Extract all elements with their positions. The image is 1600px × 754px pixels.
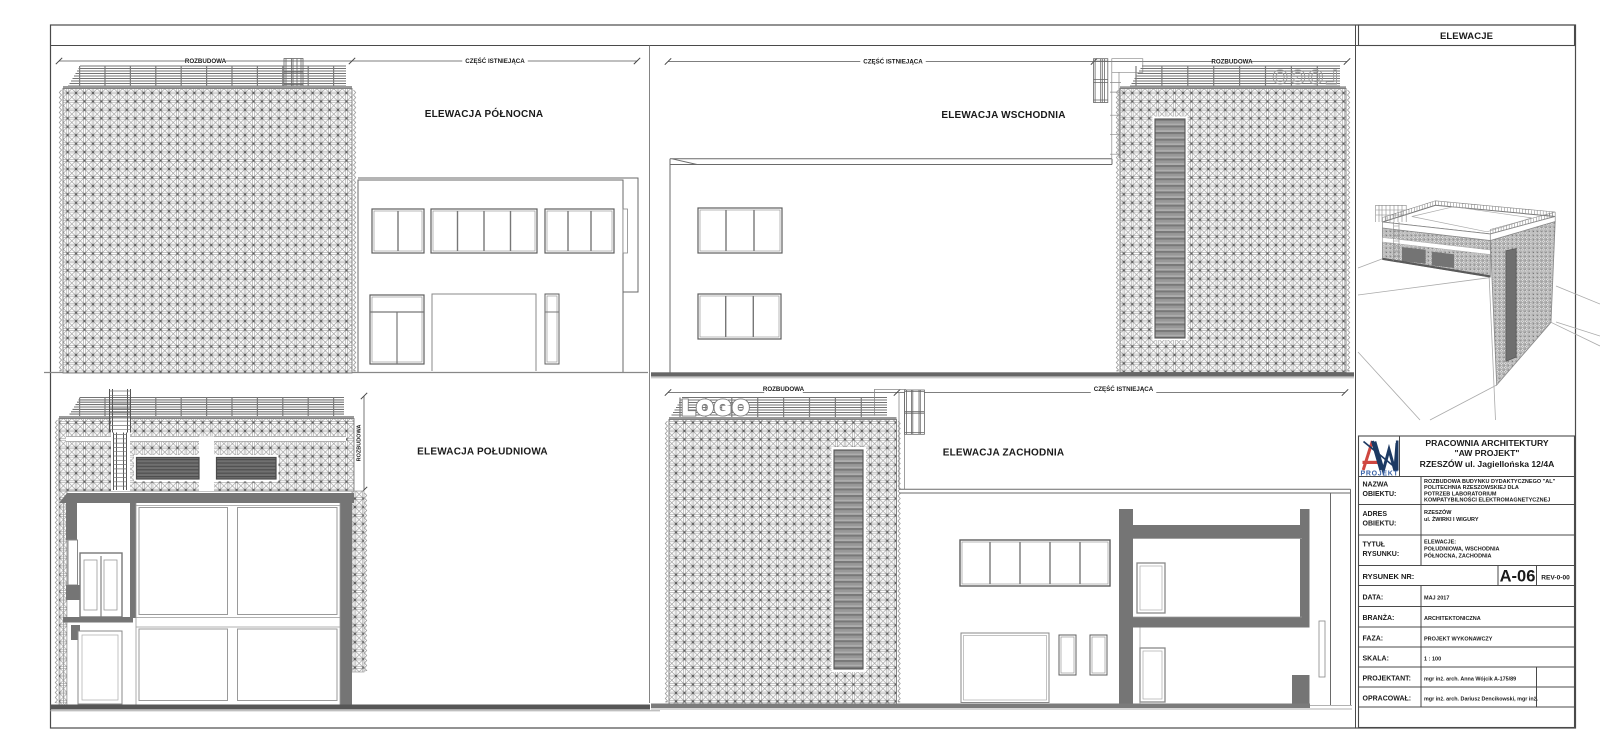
- svg-text:ELEWACJA PÓŁNOCNA: ELEWACJA PÓŁNOCNA: [425, 107, 544, 120]
- svg-text:ELEWACJA ZACHODNIA: ELEWACJA ZACHODNIA: [943, 448, 1065, 459]
- svg-text:RYSUNKU:: RYSUNKU:: [1363, 551, 1400, 558]
- svg-text:POTRZEB LABORATORIUM: POTRZEB LABORATORIUM: [1424, 491, 1497, 497]
- svg-text:PÓŁNOCNA, ZACHODNIA: PÓŁNOCNA, ZACHODNIA: [1424, 552, 1492, 560]
- svg-text:OBIEKTU:: OBIEKTU:: [1363, 521, 1397, 528]
- svg-text:OPRACOWAŁ:: OPRACOWAŁ:: [1363, 696, 1412, 703]
- svg-text:DATA:: DATA:: [1363, 595, 1384, 602]
- svg-text:"AW PROJEKT": "AW PROJEKT": [1455, 448, 1520, 458]
- svg-text:ELEWACJE: ELEWACJE: [1440, 31, 1493, 42]
- svg-text:PROJEKTANT:: PROJEKTANT:: [1363, 676, 1411, 683]
- svg-text:ROZBUDOWA: ROZBUDOWA: [763, 386, 805, 393]
- svg-text:POLITECHNIA RZESZOWSKIEJ DLA: POLITECHNIA RZESZOWSKIEJ DLA: [1424, 485, 1519, 491]
- svg-text:PRACOWNIA ARCHITEKTURY: PRACOWNIA ARCHITEKTURY: [1425, 438, 1548, 448]
- svg-text:TYTUŁ: TYTUŁ: [1363, 542, 1386, 549]
- svg-text:NAZWA: NAZWA: [1363, 482, 1389, 489]
- svg-text:SKALA:: SKALA:: [1363, 656, 1389, 663]
- svg-text:ADRES: ADRES: [1363, 511, 1388, 518]
- svg-text:PROJEKT: PROJEKT: [1361, 470, 1399, 477]
- svg-text:RZESZÓW: RZESZÓW: [1424, 508, 1452, 516]
- svg-text:CZĘŚĆ ISTNIEJĄCA: CZĘŚĆ ISTNIEJĄCA: [465, 57, 525, 65]
- svg-text:mgr inż. arch. Dariusz Denciko: mgr inż. arch. Dariusz Dencikowski, mgr …: [1424, 697, 1538, 703]
- svg-text:OBIEKTU:: OBIEKTU:: [1363, 491, 1397, 498]
- svg-text:MAJ 2017: MAJ 2017: [1424, 596, 1449, 602]
- svg-text:PROJEKT WYKONAWCZY: PROJEKT WYKONAWCZY: [1424, 637, 1493, 643]
- svg-text:KOMPATYBILNOŚCI ELEKTROMAGNETY: KOMPATYBILNOŚCI ELEKTROMAGNETYCZNEJ: [1424, 497, 1550, 504]
- svg-text:1 : 100: 1 : 100: [1424, 657, 1441, 663]
- svg-text:ROZBUDOWA BUDYNKU DYDAKTYCZNEG: ROZBUDOWA BUDYNKU DYDAKTYCZNEGO "AL": [1424, 479, 1556, 485]
- svg-text:ROZBUDOWA: ROZBUDOWA: [357, 425, 363, 462]
- svg-text:ELEWACJE:: ELEWACJE:: [1424, 540, 1456, 546]
- svg-text:REV-0-00: REV-0-00: [1541, 575, 1570, 582]
- svg-text:ELEWACJA WSCHODNIA: ELEWACJA WSCHODNIA: [941, 110, 1065, 121]
- svg-text:LOGO: LOGO: [1270, 67, 1338, 89]
- svg-text:ROZBUDOWA: ROZBUDOWA: [1211, 59, 1253, 66]
- svg-text:mgr inż. arch. Anna Wójcik A-1: mgr inż. arch. Anna Wójcik A-175/89: [1424, 677, 1516, 683]
- svg-text:ROZBUDOWA: ROZBUDOWA: [185, 58, 227, 65]
- svg-text:FAZA:: FAZA:: [1363, 636, 1384, 643]
- svg-text:A-06: A-06: [1500, 568, 1536, 586]
- svg-text:ul. ŻWIRKI I WIGURY: ul. ŻWIRKI I WIGURY: [1424, 516, 1479, 523]
- svg-text:RYSUNEK NR:: RYSUNEK NR:: [1363, 572, 1415, 581]
- svg-text:ELEWACJA POŁUDNIOWA: ELEWACJA POŁUDNIOWA: [417, 447, 548, 458]
- svg-text:LOGO: LOGO: [682, 397, 750, 420]
- svg-text:BRANŻA:: BRANŻA:: [1363, 614, 1395, 622]
- svg-text:ARCHITEKTONICZNA: ARCHITEKTONICZNA: [1424, 616, 1481, 622]
- svg-text:RZESZÓW ul. Jagiellońska 12/4A: RZESZÓW ul. Jagiellońska 12/4A: [1420, 458, 1555, 469]
- svg-text:POŁUDNIOWA, WSCHODNIA: POŁUDNIOWA, WSCHODNIA: [1424, 547, 1499, 553]
- svg-text:CZĘŚĆ ISTNIEJĄCA: CZĘŚĆ ISTNIEJĄCA: [1094, 385, 1154, 393]
- svg-text:CZĘŚĆ ISTNIEJĄCA: CZĘŚĆ ISTNIEJĄCA: [863, 58, 923, 66]
